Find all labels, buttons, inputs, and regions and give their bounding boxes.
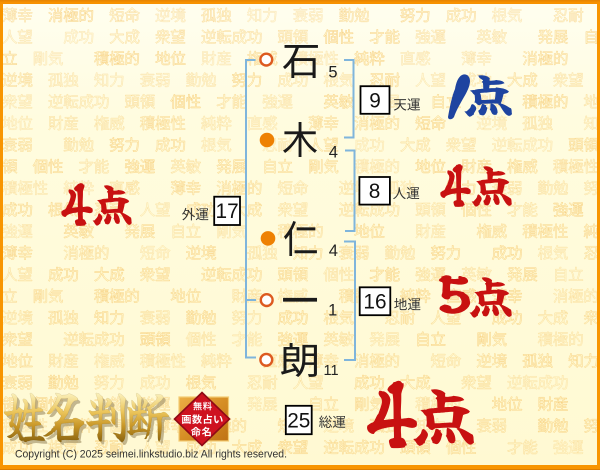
svg-text:1: 1 [328, 302, 337, 320]
svg-text:Copyright (C) 2025 seimei.link: Copyright (C) 2025 seimei.linkstudio.biz… [15, 449, 287, 461]
svg-text:11: 11 [323, 363, 338, 379]
svg-text:5: 5 [328, 64, 337, 82]
svg-text:25: 25 [287, 409, 310, 432]
svg-text:8: 8 [369, 180, 381, 203]
svg-text:17: 17 [216, 200, 239, 223]
svg-text:16: 16 [363, 291, 386, 314]
svg-text:4: 4 [329, 242, 338, 260]
svg-text:9: 9 [369, 89, 381, 112]
svg-text:4: 4 [329, 144, 338, 162]
